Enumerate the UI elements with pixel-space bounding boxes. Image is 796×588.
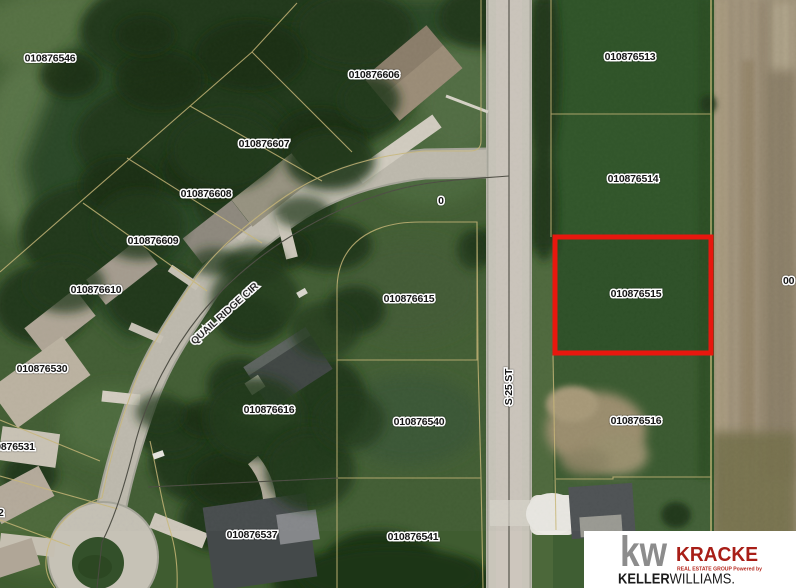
- svg-text:010876541: 010876541: [388, 531, 439, 543]
- svg-text:010876616: 010876616: [244, 404, 295, 416]
- svg-text:KELLERWILLIAMS.: KELLERWILLIAMS.: [618, 571, 735, 588]
- svg-text:010876608: 010876608: [181, 188, 232, 200]
- svg-text:00: 00: [783, 275, 795, 287]
- svg-text:S 25 ST: S 25 ST: [503, 368, 515, 405]
- svg-text:010876615: 010876615: [384, 293, 435, 305]
- svg-text:010876537: 010876537: [227, 529, 278, 541]
- svg-text:2: 2: [0, 507, 4, 519]
- svg-text:010876609: 010876609: [128, 235, 179, 247]
- svg-text:kw: kw: [620, 528, 667, 576]
- svg-text:010876610: 010876610: [71, 284, 122, 296]
- svg-text:010876513: 010876513: [605, 51, 656, 63]
- svg-text:010876546: 010876546: [25, 53, 76, 65]
- svg-text:KRACKE: KRACKE: [676, 544, 758, 566]
- svg-text:010876514: 010876514: [608, 173, 659, 185]
- svg-text:010876531: 010876531: [0, 441, 35, 453]
- svg-text:010876530: 010876530: [17, 363, 68, 375]
- svg-text:010876515: 010876515: [611, 288, 662, 300]
- svg-text:010876516: 010876516: [611, 415, 662, 427]
- svg-text:0: 0: [438, 195, 444, 207]
- svg-text:010876606: 010876606: [349, 69, 400, 81]
- svg-text:010876607: 010876607: [239, 138, 290, 150]
- svg-text:010876540: 010876540: [394, 416, 445, 428]
